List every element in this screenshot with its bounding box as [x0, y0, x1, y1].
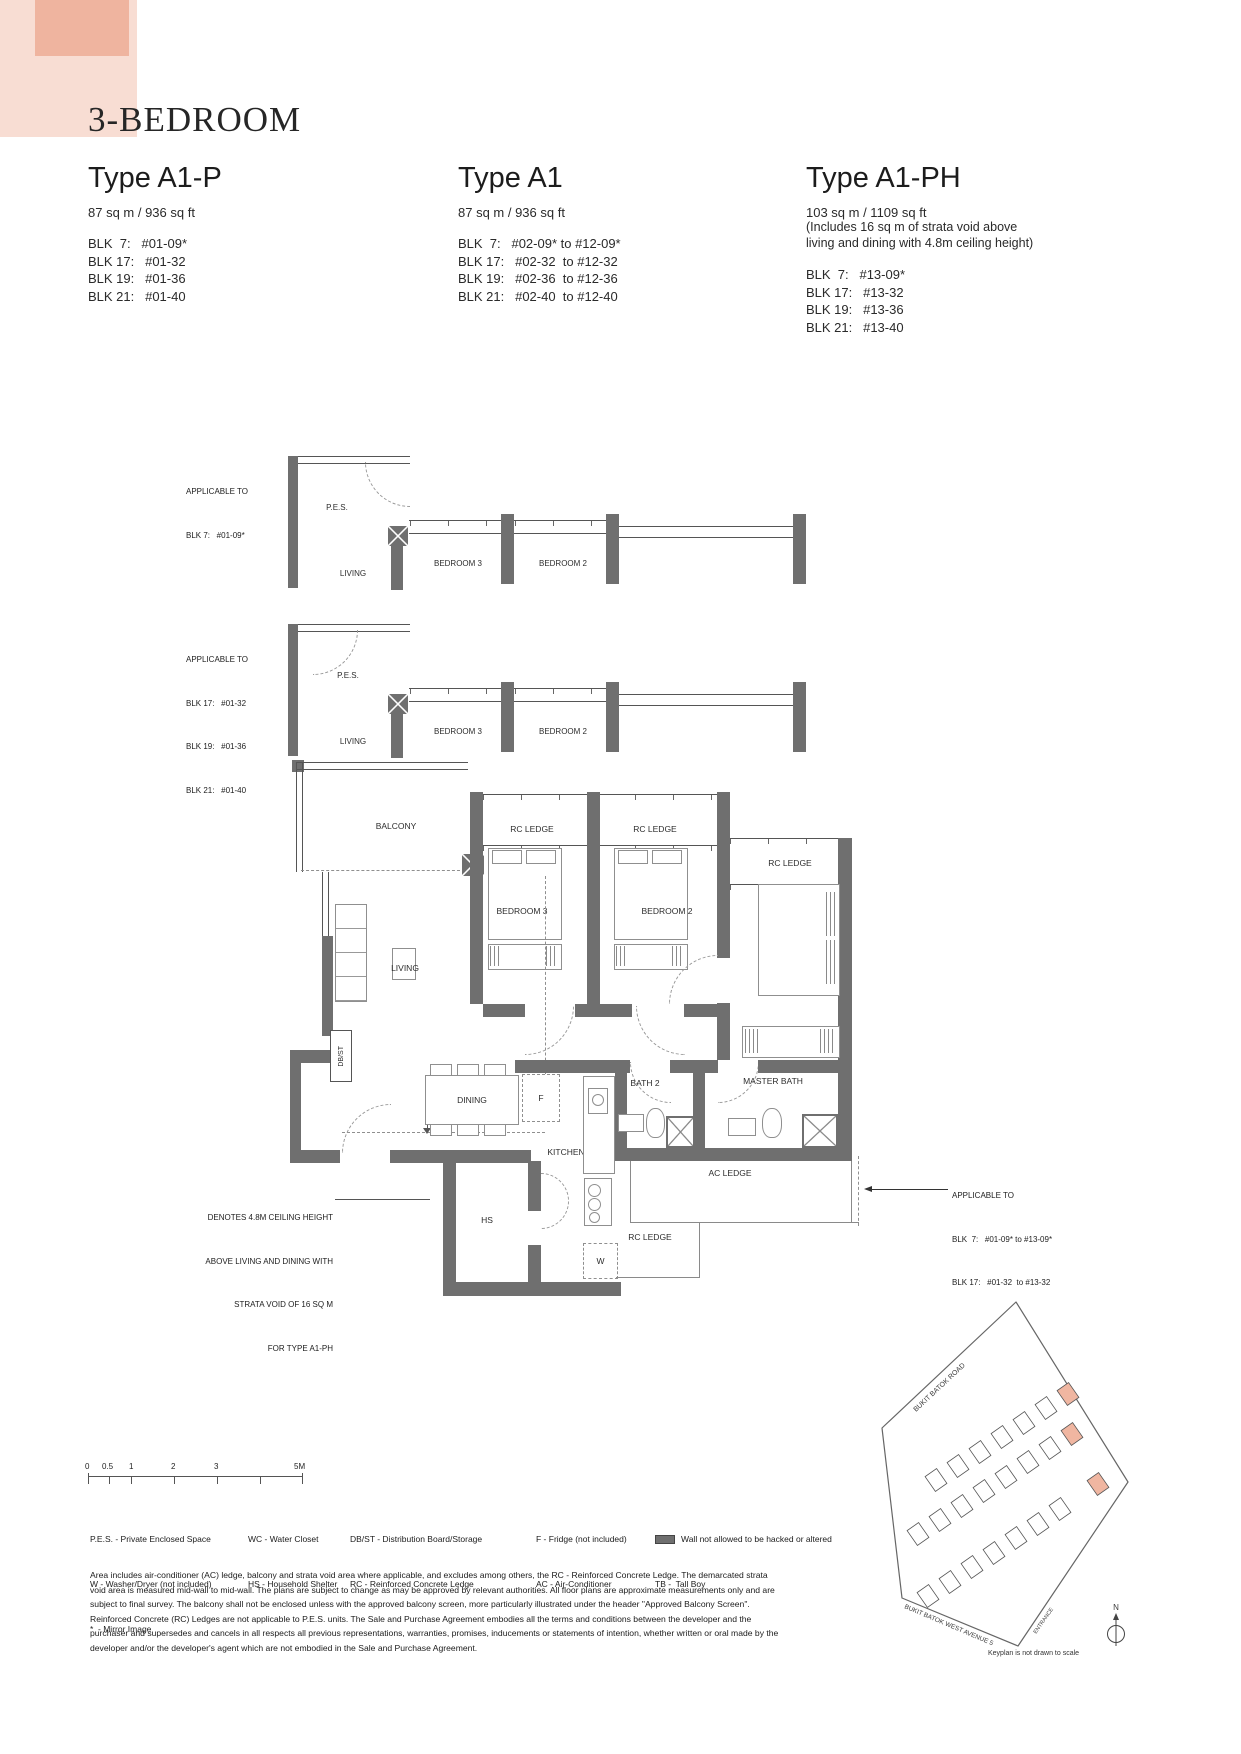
ac-ledge-line — [851, 1161, 852, 1223]
dbst-box: DB/ST — [330, 1030, 352, 1082]
bench-hatch — [672, 946, 684, 966]
scale-tick-label: 0 — [85, 1462, 89, 1471]
pillow — [826, 892, 836, 936]
type-a1ph-block-row: BLK 7: #13-09* — [806, 266, 1033, 284]
wall — [470, 792, 483, 1004]
scale-tick-label: 3 — [214, 1462, 218, 1471]
note-line: BLK 19: #01-36 — [186, 740, 248, 755]
note-line: APPLICABLE TO — [952, 1189, 1052, 1204]
ceiling-height-note: DENOTES 4.8M CEILING HEIGHT ABOVE LIVING… — [150, 1182, 333, 1385]
type-a1p-title: Type A1-P — [88, 160, 222, 196]
scale-tick-label: 5M — [294, 1462, 305, 1471]
rc-ledge-line — [616, 1277, 700, 1278]
scale-bar: 0 0.5 1 2 3 5M — [88, 1462, 303, 1490]
window-ticks — [515, 521, 605, 526]
door-arc — [365, 462, 410, 507]
pillow — [526, 850, 556, 864]
toilet — [762, 1108, 782, 1138]
room-label-pes: P.E.S. — [323, 670, 373, 681]
type-a1-title: Type A1 — [458, 160, 621, 196]
legend-item: DB/ST - Distribution Board/Storage — [350, 1532, 482, 1547]
room-label-rc-ledge: RC LEDGE — [492, 824, 572, 835]
door-arc — [313, 630, 358, 675]
type-a1ph-block-row: BLK 21: #13-40 — [806, 319, 1033, 337]
chair — [430, 1124, 452, 1136]
wall — [575, 1004, 632, 1017]
floorplan-small-2: P.E.S. LIVING BEDROOM 3 BEDROOM 2 — [283, 620, 818, 765]
type-a1ph-note: (Includes 16 sq m of strata void above — [806, 220, 1033, 236]
ac-ledge-line — [630, 1161, 631, 1223]
keyplan-entrance-label: ENTRANCE — [1033, 1607, 1055, 1635]
note-line: BLK 7: #01-09* to #13-09* — [952, 1233, 1052, 1248]
wall — [501, 682, 514, 752]
note-line: ABOVE LIVING AND DINING WITH — [150, 1255, 333, 1270]
wall — [717, 1003, 730, 1060]
window-ticks — [483, 795, 730, 800]
legend-item: F - Fridge (not included) — [536, 1532, 627, 1547]
wall — [684, 1004, 717, 1017]
type-a1ph-title: Type A1-PH — [806, 160, 1033, 196]
room-label-bedroom2: BEDROOM 2 — [526, 726, 600, 737]
wall — [717, 792, 730, 958]
washer-box: W — [583, 1243, 618, 1279]
legend-item: WC - Water Closet — [248, 1532, 337, 1547]
type-a1-block-row: BLK 19: #02-36 to #12-36 — [458, 270, 621, 288]
room-label-hs: HS — [459, 1215, 515, 1226]
floorplan-page: 3-BEDROOM Type A1-P 87 sq m / 936 sq ft … — [0, 0, 1241, 1754]
wall — [501, 514, 514, 584]
type-a1ph-note: living and dining with 4.8m ceiling heig… — [806, 236, 1033, 252]
scale-tick-label: 0.5 — [102, 1462, 113, 1471]
type-a1ph-area: 103 sq m / 1109 sq ft — [806, 205, 1033, 220]
wall — [443, 1282, 621, 1296]
bench-hatch — [546, 946, 558, 966]
shower-box — [666, 1116, 695, 1148]
room-label-bedroom3: BEDROOM 3 — [484, 906, 560, 917]
legend-item-label: Wall not allowed to be hacked or altered — [681, 1532, 832, 1547]
room-label-living: LIVING — [323, 736, 383, 747]
note-line: FOR TYPE A1-PH — [150, 1342, 333, 1357]
wall — [615, 1060, 630, 1073]
scale-tick — [217, 1476, 218, 1484]
hob-burner — [589, 1212, 600, 1223]
window-line — [619, 526, 793, 538]
room-label-dbst: DB/ST — [338, 1046, 345, 1067]
type-a1ph-block-row: BLK 19: #13-36 — [806, 301, 1033, 319]
wall — [390, 1150, 531, 1163]
pillow — [652, 850, 682, 864]
window-ticks — [410, 689, 500, 694]
wall — [838, 838, 852, 1161]
keyplan-highlighted-block — [1057, 1383, 1079, 1406]
floorplan-small-1: P.E.S. LIVING BEDROOM 3 BEDROOM 2 — [283, 452, 818, 597]
wall-legend-chip — [655, 1535, 675, 1544]
wall — [528, 1245, 541, 1282]
disclaimer-text: Area includes air-conditioner (AC) ledge… — [90, 1568, 780, 1656]
bench-hatch — [490, 946, 502, 966]
leader-line — [872, 1189, 948, 1190]
ac-junction-box — [388, 526, 408, 546]
room-label-master-bath: MASTER BATH — [742, 1076, 804, 1087]
scale-tick — [131, 1476, 132, 1484]
keyplan-highlighted-block — [1087, 1473, 1109, 1496]
room-label-bedroom2: BEDROOM 2 — [526, 558, 600, 569]
keyplan: BUKIT BATOK ROAD BUKIT BATOK WEST AVENUE… — [866, 1290, 1166, 1670]
plan1-applicable-note: APPLICABLE TO BLK 7: #01-09* — [186, 456, 248, 572]
keyplan-road-label: BUKIT BATOK WEST AVENUE 5 — [903, 1603, 994, 1647]
scale-tick — [88, 1473, 89, 1484]
keyplan-road-label: BUKIT BATOK ROAD — [913, 1362, 967, 1413]
type-a1-block-row: BLK 7: #02-09* to #12-09* — [458, 235, 621, 253]
wall — [587, 792, 600, 1004]
type-a1p-block-row: BLK 19: #01-36 — [88, 270, 222, 288]
wall — [793, 514, 806, 584]
scale-tick-label: 1 — [129, 1462, 133, 1471]
window-ticks — [730, 839, 840, 844]
type-a1p-block-row: BLK 7: #01-09* — [88, 235, 222, 253]
room-label-balcony: BALCONY — [346, 821, 446, 832]
ac-ledge-dashed-edge — [858, 1156, 860, 1226]
wall — [290, 1050, 330, 1063]
wall — [391, 546, 403, 590]
pillow — [826, 940, 836, 984]
note-line: BLK 17: #01-32 — [186, 697, 248, 712]
door-arc — [636, 1006, 685, 1055]
window-line — [619, 694, 793, 706]
room-label-rc-ledge: RC LEDGE — [615, 824, 695, 835]
note-line: DENOTES 4.8M CEILING HEIGHT — [150, 1211, 333, 1226]
legend-item: P.E.S. - Private Enclosed Space — [90, 1532, 212, 1547]
wardrobe-hatch — [820, 1029, 833, 1053]
chair — [484, 1124, 506, 1136]
wall — [793, 682, 806, 752]
scale-line — [88, 1476, 303, 1477]
note-line: STRATA VOID OF 16 SQ M — [150, 1298, 333, 1313]
window-line — [296, 762, 468, 770]
wall — [288, 624, 298, 756]
note-line: APPLICABLE TO — [186, 485, 248, 500]
dining-table: DINING — [425, 1075, 519, 1125]
shower-box — [802, 1114, 838, 1148]
room-label-bath2: BATH 2 — [613, 1078, 677, 1089]
note-line: BLK 17: #01-32 to #13-32 — [952, 1276, 1052, 1291]
sofa — [335, 904, 367, 1002]
type-a1p-info: Type A1-P 87 sq m / 936 sq ft BLK 7: #01… — [88, 160, 222, 305]
note-line: BLK 7: #01-09* — [186, 529, 248, 544]
leader-line — [335, 1199, 430, 1200]
room-label-bedroom3: BEDROOM 3 — [421, 558, 495, 569]
hob-burner — [588, 1184, 601, 1197]
wall — [483, 1004, 525, 1017]
window-line — [322, 872, 329, 936]
wall — [528, 1161, 541, 1211]
scale-tick — [109, 1476, 110, 1484]
pillow — [618, 850, 648, 864]
wall — [391, 714, 403, 758]
room-label-ac-ledge: AC LEDGE — [692, 1168, 768, 1179]
wall — [515, 1060, 615, 1073]
room-label-living: LIVING — [375, 963, 435, 974]
type-a1ph-block-row: BLK 17: #13-32 — [806, 284, 1033, 302]
note-line: BLK 21: #01-40 — [186, 784, 248, 799]
toilet — [646, 1108, 665, 1138]
wall — [290, 1150, 340, 1163]
door-arc — [525, 1006, 574, 1055]
floorplan-main: BALCONY RC LEDGE RC LEDGE RC LEDGE BEDRO… — [280, 758, 865, 1303]
door-arc — [342, 1104, 391, 1153]
window-ticks — [515, 689, 605, 694]
room-label-fridge: F — [538, 1093, 543, 1104]
decorative-square-dark — [35, 0, 129, 56]
plan2-applicable-note: APPLICABLE TO BLK 17: #01-32 BLK 19: #01… — [186, 624, 248, 827]
scale-tick — [174, 1476, 175, 1484]
wall — [288, 456, 298, 588]
wall — [758, 1060, 838, 1073]
type-a1-block-row: BLK 21: #02-40 to #12-40 — [458, 288, 621, 306]
type-a1-block-row: BLK 17: #02-32 to #12-32 — [458, 253, 621, 271]
pillow — [492, 850, 522, 864]
page-title: 3-BEDROOM — [88, 100, 301, 140]
keyplan-highlighted-block — [1061, 1423, 1083, 1446]
ac-junction-box — [388, 694, 408, 714]
hob-burner — [588, 1198, 601, 1211]
window-ticks — [410, 521, 500, 526]
type-a1ph-info: Type A1-PH 103 sq m / 1109 sq ft (Includ… — [806, 160, 1033, 336]
wall — [290, 1063, 301, 1150]
room-label-washer: W — [596, 1256, 604, 1267]
wall — [322, 936, 333, 1036]
note-line: APPLICABLE TO — [186, 653, 248, 668]
room-label-rc-ledge: RC LEDGE — [750, 858, 830, 869]
type-a1-area: 87 sq m / 936 sq ft — [458, 205, 621, 220]
room-label-living: LIVING — [323, 568, 383, 579]
arrow-left-icon — [864, 1186, 872, 1192]
type-a1p-block-row: BLK 17: #01-32 — [88, 253, 222, 271]
door-arc — [541, 1173, 569, 1229]
scale-tick — [260, 1476, 261, 1484]
wardrobe-hatch — [745, 1029, 758, 1053]
legend-item: Wall not allowed to be hacked or altered — [655, 1532, 832, 1547]
type-a1p-block-row: BLK 21: #01-40 — [88, 288, 222, 306]
wall — [606, 682, 619, 752]
fridge-box: F — [522, 1074, 560, 1122]
sink-basin — [592, 1094, 604, 1106]
wall — [606, 514, 619, 584]
room-label-dining: DINING — [457, 1095, 487, 1106]
room-label-rc-ledge: RC LEDGE — [616, 1232, 684, 1243]
ac-ledge-line — [630, 1222, 859, 1223]
rc-ledge-line — [699, 1222, 700, 1278]
bathroom-sink — [618, 1114, 644, 1132]
scale-tick — [302, 1473, 303, 1484]
window-line — [296, 762, 303, 872]
wall — [615, 1148, 838, 1161]
type-a1-info: Type A1 87 sq m / 936 sq ft BLK 7: #02-0… — [458, 160, 621, 305]
scale-tick-label: 2 — [171, 1462, 175, 1471]
type-a1p-area: 87 sq m / 936 sq ft — [88, 205, 222, 220]
bench-hatch — [616, 946, 628, 966]
room-label-bedroom2: BEDROOM 2 — [629, 906, 705, 917]
chair — [457, 1124, 479, 1136]
bathroom-sink — [728, 1118, 756, 1136]
room-label-pes: P.E.S. — [312, 502, 362, 513]
compass-north-label: N — [1113, 1603, 1119, 1612]
wall — [443, 1161, 456, 1282]
keyplan-note: Keyplan is not drawn to scale — [988, 1650, 1079, 1657]
room-label-bedroom3: BEDROOM 3 — [421, 726, 495, 737]
